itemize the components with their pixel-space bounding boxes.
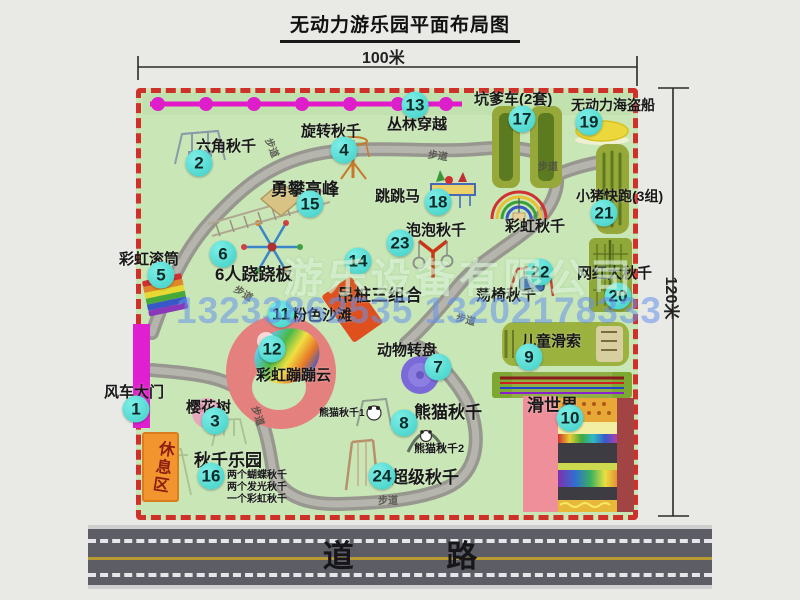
badge-hex-swing: 2 (186, 150, 213, 177)
label-rainbow-cloud: 彩虹蹦蹦云 (256, 364, 331, 385)
label-rainbow-swing: 彩虹秋千 (505, 215, 565, 236)
walkway-label: 步道 (378, 492, 398, 507)
label-panda-swing-1: 熊猫秋千1 (319, 404, 365, 419)
walkway-label: 步道 (427, 146, 449, 164)
label-pink-beach: 粉色沙滩 (292, 304, 352, 325)
badge-animal-turntable: 7 (425, 354, 452, 381)
badge-slide-world: 10 (557, 405, 584, 432)
badge-hanging-piles: 14 (345, 248, 372, 275)
badge-big-swing: 20 (605, 283, 632, 310)
road-label: 道 路 (88, 529, 712, 585)
badge-swing-park: 16 (198, 463, 225, 490)
badge-jungle-crossing: 13 (402, 92, 429, 119)
height-dimension-label: 120米 (661, 277, 685, 320)
label-swing-park-note-3: 一个彩虹秋千 (227, 490, 287, 505)
road: 道 路 (88, 525, 712, 589)
label-panda-swing-2: 熊猫秋千2 (414, 440, 464, 456)
badge-pig-run: 21 (591, 200, 618, 227)
poster-title: 无动力游乐园平面布局图 (280, 10, 520, 43)
rest-area: 休息区 (142, 432, 179, 502)
walkway-label: 步道 (538, 158, 558, 173)
label-pit-car: 坑爹车(2套) (474, 88, 552, 109)
badge-pit-car: 17 (509, 106, 536, 133)
badge-bubble-swing: 23 (387, 230, 414, 257)
badge-seesaw: 6 (210, 241, 237, 268)
badge-windmill-gate: 1 (123, 396, 150, 423)
label-chair-swing: 荡椅秋千 (476, 284, 536, 305)
badge-kids-zipline: 9 (516, 344, 543, 371)
badge-rainbow-roller: 5 (148, 262, 175, 289)
label-pig-run: 小猪快跑(3组) (576, 186, 663, 206)
badge-pink-beach: 11 (268, 301, 295, 328)
label-jump-horse: 跳跳马 (375, 185, 420, 206)
label-super-swing: 超级秋千 (391, 463, 459, 488)
badge-chair-swing: 22 (527, 259, 554, 286)
rest-area-label: 休息区 (144, 438, 176, 495)
park-plan-poster: 无动力游乐园平面布局图 (0, 0, 800, 600)
width-dimension-label: 100米 (362, 44, 405, 68)
label-hanging-piles: 吊桩三组合 (337, 281, 422, 306)
badge-jump-horse: 18 (425, 189, 452, 216)
label-big-swing: 网红大秋千 (577, 262, 652, 283)
label-rotate-swing: 旋转秋千 (301, 120, 361, 141)
badge-pirate-ship: 19 (576, 109, 603, 136)
label-bubble-swing: 泡泡秋千 (406, 219, 466, 240)
badge-rainbow-cloud: 12 (259, 336, 286, 363)
badge-panda-swing: 8 (391, 410, 418, 437)
label-panda-swing: 熊猫秋千 (414, 398, 482, 423)
badge-rotate-swing: 4 (331, 137, 358, 164)
badge-climb-peak: 15 (297, 191, 324, 218)
badge-super-swing: 24 (369, 463, 396, 490)
badge-cherry-tree: 3 (202, 408, 229, 435)
